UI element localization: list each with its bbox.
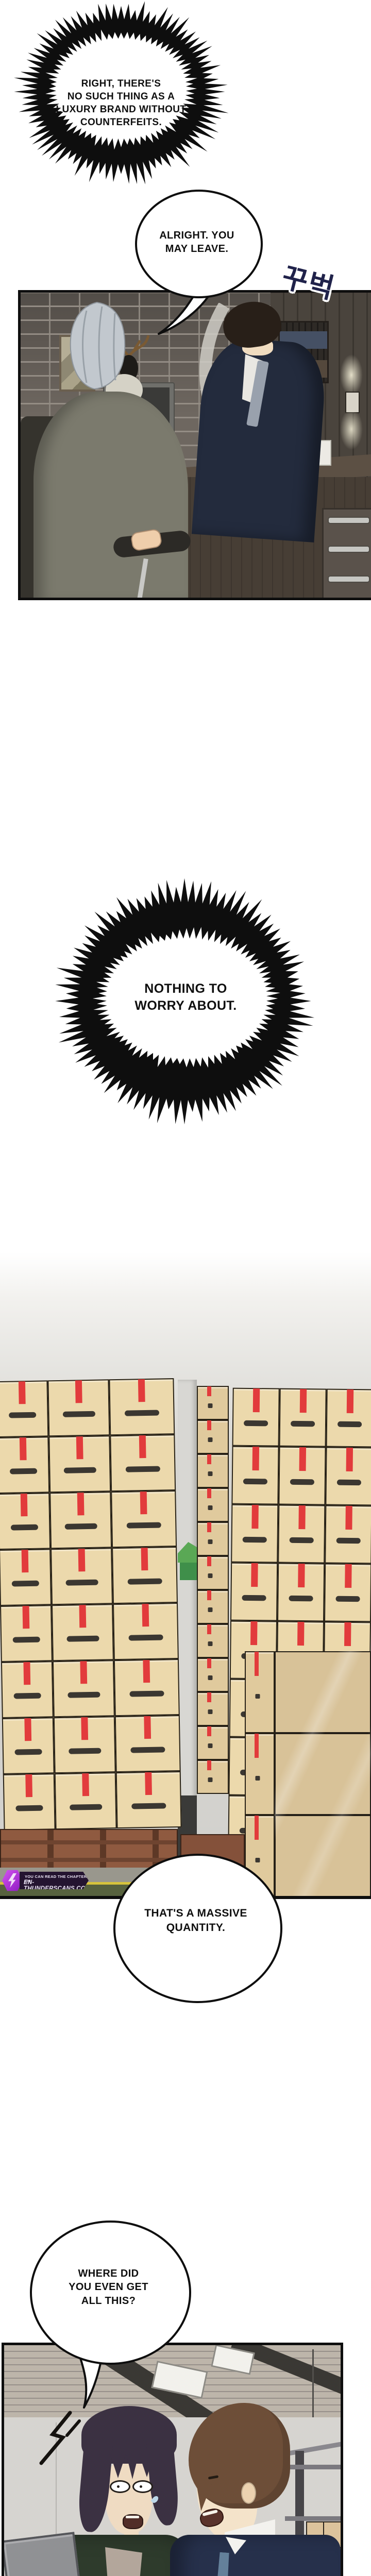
smiling-man-suit xyxy=(170,2535,341,2576)
warehouse-box xyxy=(49,1492,112,1549)
warehouse-box xyxy=(112,1547,178,1604)
box-label xyxy=(128,1578,162,1584)
warehouse-box xyxy=(115,1715,181,1772)
box-red-tape xyxy=(255,1734,259,1758)
box-stack-middle-side xyxy=(197,1386,229,1795)
warehouse-box xyxy=(324,1563,371,1622)
shock-lines-icon xyxy=(30,2410,87,2469)
box-red-tape xyxy=(252,1388,259,1412)
warehouse-box xyxy=(197,1726,229,1760)
box-red-tape xyxy=(345,1506,352,1530)
box-red-tape xyxy=(298,1505,305,1529)
warehouse-box xyxy=(1,1661,54,1718)
box-label xyxy=(11,1524,38,1530)
box-label xyxy=(338,1421,362,1428)
box-label xyxy=(12,1580,39,1586)
box-red-tape xyxy=(207,1522,211,1532)
box-label xyxy=(9,1412,36,1418)
warehouse-box xyxy=(109,1378,175,1435)
shocked-eye-right xyxy=(132,2480,153,2493)
box-red-tape xyxy=(141,1548,148,1570)
box-label xyxy=(130,1747,165,1753)
box-red-tape xyxy=(207,1658,211,1668)
pupil xyxy=(117,2485,120,2488)
warehouse-box xyxy=(278,1447,326,1505)
warehouse-box xyxy=(47,1379,110,1436)
box-label xyxy=(14,1749,42,1755)
warehouse-box xyxy=(0,1549,52,1606)
speech-massive-text: THAT'S A MASSIVE QUANTITY. xyxy=(137,1906,255,1935)
drawer-handle xyxy=(328,546,370,553)
warehouse-box xyxy=(197,1386,229,1420)
box-red-tape xyxy=(251,1563,258,1587)
box-red-tape xyxy=(255,1816,259,1840)
box-label xyxy=(255,1776,260,1781)
box-red-tape xyxy=(207,1726,211,1736)
warehouse-box xyxy=(116,1771,182,1828)
box-label xyxy=(255,1858,260,1862)
warehouse-box xyxy=(230,1563,278,1621)
box-red-tape xyxy=(207,1454,211,1464)
box-red-tape xyxy=(25,1774,32,1797)
box-red-tape xyxy=(207,1420,211,1430)
forklift-lower xyxy=(180,1563,197,1580)
box-red-tape xyxy=(251,1505,258,1529)
warehouse-box xyxy=(325,1447,371,1505)
box-red-tape xyxy=(140,1492,147,1514)
box-red-tape xyxy=(22,1550,29,1572)
warehouse-box xyxy=(197,1692,229,1726)
warehouse-box xyxy=(275,1733,371,1815)
panel-office-meeting xyxy=(18,290,371,600)
box-red-tape xyxy=(144,1716,151,1739)
box-red-tape xyxy=(207,1488,211,1498)
warehouse-box xyxy=(326,1389,371,1448)
box-red-tape xyxy=(298,1564,305,1587)
warehouse-box xyxy=(48,1435,111,1493)
warehouse-box xyxy=(52,1604,114,1661)
shocked-mouth xyxy=(123,2514,143,2529)
teeth xyxy=(126,2516,139,2518)
box-label xyxy=(129,1634,163,1640)
box-red-tape xyxy=(142,1604,149,1626)
box-label xyxy=(291,1421,315,1427)
warehouse-box xyxy=(197,1556,229,1590)
teeth xyxy=(202,2510,218,2516)
warehouse-box xyxy=(245,1733,275,1815)
shelf-beam xyxy=(285,2516,341,2521)
warehouse-box xyxy=(53,1660,115,1717)
box-label xyxy=(208,1573,213,1578)
warehouse-box xyxy=(279,1388,327,1447)
box-red-tape xyxy=(82,1773,89,1796)
box-label xyxy=(63,1467,96,1473)
box-label xyxy=(69,1748,101,1754)
box-label xyxy=(208,1777,213,1782)
box-red-tape xyxy=(143,1660,150,1683)
forklift-glimpse xyxy=(178,1533,197,1587)
box-label xyxy=(208,1505,213,1510)
box-label xyxy=(336,1538,361,1544)
box-label xyxy=(15,1805,43,1811)
box-label xyxy=(243,1479,267,1485)
watermark-banner: YOU CAN READ THE CHAPTER ON: EN-THUNDERS… xyxy=(20,1872,89,1889)
box-red-tape xyxy=(207,1692,211,1702)
box-stack-foreground xyxy=(245,1651,371,1897)
warehouse-box xyxy=(197,1522,229,1556)
burst-nothing-text: NOTHING TO WORRY ABOUT. xyxy=(112,980,259,1014)
box-label xyxy=(66,1635,99,1641)
box-label xyxy=(289,1537,314,1544)
box-red-tape xyxy=(19,1381,26,1404)
webtoon-page: RIGHT, THERE'S NO SUCH THING AS A LUXURY… xyxy=(0,0,371,2576)
warehouse-box xyxy=(55,1772,117,1829)
warehouse-box xyxy=(0,1493,50,1550)
warehouse-box xyxy=(0,1436,49,1494)
box-red-tape xyxy=(145,1772,152,1795)
warehouse-box xyxy=(197,1488,229,1522)
warehouse-box xyxy=(197,1590,229,1624)
box-label xyxy=(208,1607,213,1612)
warehouse-box xyxy=(114,1659,180,1716)
box-red-tape xyxy=(345,1564,351,1588)
warehouse-box xyxy=(0,1605,53,1662)
warehouse-box xyxy=(197,1420,229,1454)
box-label xyxy=(64,1523,97,1529)
scanlation-watermark: YOU CAN READ THE CHAPTER ON: EN-THUNDERS… xyxy=(2,1869,92,1893)
warehouse-box xyxy=(275,1651,371,1733)
warehouse-box xyxy=(111,1490,177,1548)
box-label xyxy=(208,1403,213,1408)
box-label xyxy=(208,1641,213,1646)
box-red-tape xyxy=(24,1718,31,1741)
box-red-tape xyxy=(80,1661,87,1684)
box-label xyxy=(131,1803,166,1809)
box-stack-left xyxy=(0,1378,182,1831)
box-red-tape xyxy=(139,1435,146,1458)
warehouse-box xyxy=(231,1504,278,1563)
warehouse-box xyxy=(2,1717,55,1774)
box-red-tape xyxy=(78,1549,85,1571)
box-label xyxy=(10,1468,37,1475)
grayman-hair xyxy=(66,300,128,391)
box-red-tape xyxy=(81,1717,88,1740)
box-red-tape xyxy=(207,1624,211,1634)
box-red-tape xyxy=(207,1590,211,1600)
warehouse-box xyxy=(231,1446,279,1505)
box-label xyxy=(126,1466,160,1472)
box-label xyxy=(335,1596,360,1602)
box-red-tape xyxy=(75,1380,82,1403)
warehouse-box xyxy=(113,1603,179,1660)
watermark-line2: EN-THUNDERSCANS.COM xyxy=(24,1879,91,1892)
box-label xyxy=(65,1579,98,1585)
box-red-tape xyxy=(207,1760,211,1770)
box-label xyxy=(290,1479,314,1485)
box-red-tape xyxy=(79,1605,86,1628)
box-label xyxy=(62,1411,95,1417)
box-red-tape xyxy=(76,1436,83,1459)
box-label xyxy=(242,1595,266,1601)
box-label xyxy=(244,1420,268,1427)
box-red-tape xyxy=(207,1386,211,1396)
shocked-eye-left xyxy=(110,2480,130,2493)
warehouse-box xyxy=(275,1815,371,1897)
pupil xyxy=(140,2485,142,2488)
box-red-tape xyxy=(23,1662,30,1685)
box-label xyxy=(14,1692,41,1699)
box-red-tape xyxy=(207,1556,211,1566)
box-label xyxy=(70,1804,102,1810)
box-red-tape xyxy=(346,1448,352,1471)
box-red-tape xyxy=(252,1447,259,1470)
warehouse-box xyxy=(277,1563,325,1622)
box-red-tape xyxy=(23,1606,30,1629)
box-red-tape xyxy=(138,1379,145,1402)
warehouse-box xyxy=(232,1388,280,1447)
desk-drawers xyxy=(322,508,371,600)
box-red-tape xyxy=(299,1447,306,1471)
box-label xyxy=(208,1675,213,1680)
office-wall-sconce xyxy=(336,354,367,452)
warehouse-box xyxy=(245,1651,275,1733)
warehouse-box xyxy=(50,1548,113,1605)
sconce-glow-top xyxy=(340,354,363,396)
forklift-body xyxy=(178,1542,197,1563)
box-label xyxy=(255,1694,260,1699)
box-label xyxy=(127,1522,161,1528)
panel-warehouse-characters xyxy=(2,2343,343,2576)
warehouse-box xyxy=(197,1454,229,1488)
warehouse-box xyxy=(3,1773,56,1831)
box-red-tape xyxy=(299,1389,306,1413)
box-label xyxy=(208,1539,213,1544)
box-red-tape xyxy=(255,1652,259,1676)
box-red-tape xyxy=(344,1622,351,1646)
box-label xyxy=(242,1537,267,1543)
drawer-handle xyxy=(328,517,370,524)
warehouse-box xyxy=(325,1505,371,1564)
box-label xyxy=(336,1480,361,1486)
speech-alright-text: ALRIGHT. YOU MAY LEAVE. xyxy=(143,229,251,256)
sconce-glow-bottom xyxy=(340,409,363,450)
warehouse-box xyxy=(197,1658,229,1692)
warehouse-box xyxy=(110,1434,176,1492)
box-red-tape xyxy=(77,1493,84,1515)
box-label xyxy=(208,1709,213,1714)
drawer-handle xyxy=(328,575,370,583)
box-red-tape xyxy=(297,1622,304,1646)
box-label xyxy=(208,1471,213,1476)
box-red-tape xyxy=(21,1494,28,1516)
warehouse-box xyxy=(0,1380,48,1437)
box-label xyxy=(289,1596,313,1602)
box-label xyxy=(129,1690,164,1697)
box-red-tape xyxy=(250,1621,257,1645)
box-label xyxy=(125,1410,159,1416)
warehouse-box xyxy=(197,1760,229,1794)
box-label xyxy=(208,1437,213,1442)
box-label xyxy=(68,1691,100,1698)
burst-top-text: RIGHT, THERE'S NO SUCH THING AS A LUXURY… xyxy=(49,77,193,129)
shelf-beam xyxy=(285,2465,341,2469)
box-label xyxy=(208,1743,213,1748)
warehouse-box xyxy=(278,1505,325,1564)
warehouse-box xyxy=(197,1624,229,1658)
warehouse-box xyxy=(54,1716,116,1773)
grayman-suit xyxy=(33,392,188,600)
box-red-tape xyxy=(346,1389,353,1413)
ear xyxy=(241,2482,256,2504)
box-red-tape xyxy=(20,1437,27,1460)
panel-warehouse-boxes: YOU CAN READ THE CHAPTER ON: EN-THUNDERS… xyxy=(0,1252,371,1899)
box-label xyxy=(13,1636,40,1642)
speech-wheredid-text: WHERE DID YOU EVEN GET ALL THIS? xyxy=(56,2267,161,2308)
